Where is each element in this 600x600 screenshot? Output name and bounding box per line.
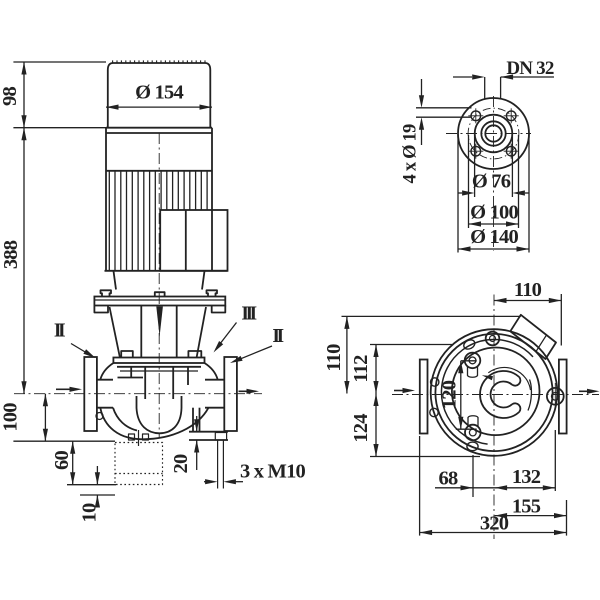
svg-text:II: II: [272, 326, 283, 347]
svg-text:68: 68: [439, 467, 458, 489]
svg-text:Ø 140: Ø 140: [470, 226, 518, 248]
svg-text:60: 60: [51, 451, 73, 470]
svg-text:110: 110: [514, 279, 542, 301]
svg-text:III: III: [241, 304, 256, 325]
svg-text:Ø 100: Ø 100: [470, 201, 518, 223]
svg-text:320: 320: [480, 512, 509, 534]
svg-text:10: 10: [78, 503, 100, 522]
svg-text:Ø 76: Ø 76: [472, 170, 511, 192]
svg-text:124: 124: [350, 414, 372, 443]
svg-text:100: 100: [0, 403, 21, 432]
svg-text:98: 98: [0, 87, 21, 106]
svg-text:4 x Ø 19: 4 x Ø 19: [400, 124, 420, 183]
svg-text:20: 20: [170, 454, 192, 473]
svg-text:3 x M10: 3 x M10: [240, 460, 306, 482]
svg-text:110: 110: [323, 344, 345, 372]
svg-text:132: 132: [512, 466, 541, 488]
svg-text:112: 112: [350, 355, 372, 383]
svg-text:II: II: [54, 321, 65, 342]
svg-text:388: 388: [0, 240, 22, 269]
svg-text:120: 120: [438, 380, 460, 409]
svg-text:DN 32: DN 32: [506, 58, 553, 79]
svg-text:Ø 154: Ø 154: [135, 81, 183, 103]
svg-text:155: 155: [512, 495, 541, 517]
